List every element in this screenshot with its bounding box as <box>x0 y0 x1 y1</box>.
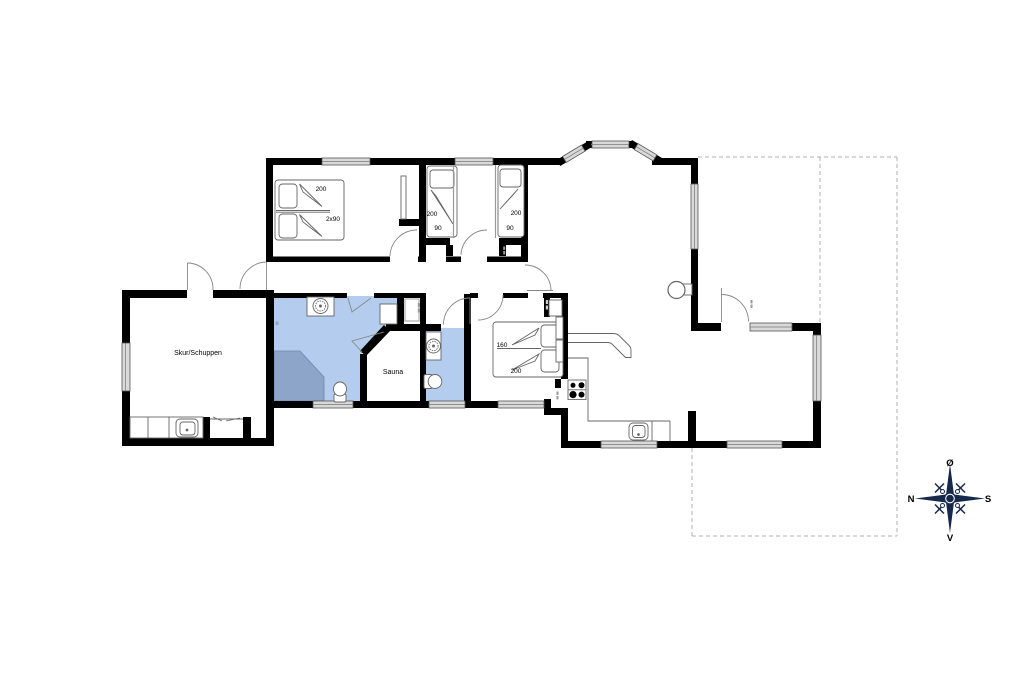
svg-text:90: 90 <box>434 225 442 232</box>
svg-text:2x90: 2x90 <box>326 216 340 223</box>
svg-text:Skur/Schuppen: Skur/Schuppen <box>174 350 222 357</box>
svg-text:200: 200 <box>511 210 522 217</box>
svg-text:200: 200 <box>511 368 522 375</box>
svg-text:N: N <box>908 494 915 505</box>
svg-text:V: V <box>947 533 954 544</box>
svg-text:S: S <box>985 494 991 505</box>
svg-text:Ø: Ø <box>946 458 953 469</box>
svg-text:200: 200 <box>427 211 438 218</box>
svg-text:Sauna: Sauna <box>383 369 403 376</box>
svg-text:90: 90 <box>506 225 514 232</box>
svg-text:200: 200 <box>316 186 327 193</box>
svg-text:160: 160 <box>497 342 508 349</box>
